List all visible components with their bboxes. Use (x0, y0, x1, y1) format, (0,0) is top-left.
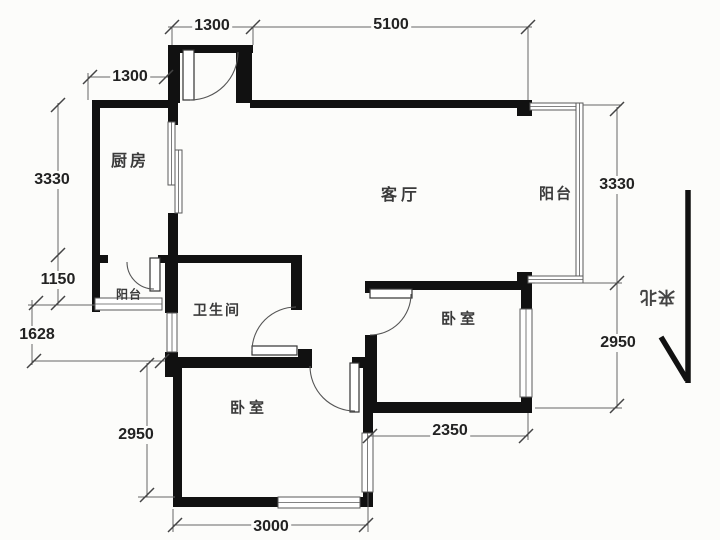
wall-segment (291, 255, 302, 310)
dimension-label: 3330 (597, 176, 637, 194)
dimension-label: 2950 (116, 426, 156, 444)
door-swing-arc (310, 366, 355, 411)
dimension-label: 2350 (430, 422, 470, 440)
room-label-bedroom-right: 卧室 (441, 308, 479, 329)
wall-segment (158, 255, 302, 263)
room-label-balcony-small: 阳台 (116, 286, 142, 303)
dimension-label: 5100 (371, 16, 411, 34)
room-label-balcony-right: 阳台 (539, 183, 573, 204)
floor-plan-canvas (0, 0, 720, 540)
wall-segment (365, 335, 377, 413)
room-label-kitchen: 厨房 (111, 147, 149, 171)
dimension-label: 3330 (32, 171, 72, 189)
dimension-label: 1150 (39, 271, 78, 289)
dimension-label: 3000 (251, 518, 291, 536)
wall-segment (521, 281, 532, 309)
door-leaf (183, 50, 194, 100)
dimension-tick (29, 296, 43, 310)
wall-segment (173, 497, 280, 507)
door-leaf (252, 346, 297, 355)
room-label-bedroom-bottom: 卧室 (230, 397, 268, 418)
dimension-label: 1300 (110, 68, 150, 86)
door-leaf (350, 363, 359, 412)
wall-segment (92, 100, 100, 312)
north-arrow-line (661, 337, 687, 380)
door-leaf (370, 289, 412, 298)
wall-segment (363, 402, 531, 413)
room-label-living-room: 客厅 (381, 181, 421, 205)
wall-segment (173, 357, 182, 507)
wall-segment (92, 100, 170, 108)
wall-segment (165, 357, 312, 368)
dimension-label: 1300 (192, 17, 232, 35)
door-swing-arc (252, 307, 296, 351)
dimension-label: 2950 (598, 334, 638, 352)
north-label: 来北 (639, 287, 675, 312)
door-leaf (150, 258, 160, 291)
wall-segment (165, 263, 178, 313)
floor-plan: 厨房客厅阳台阳台卫生间卧室卧室1300510013003330115016282… (0, 0, 720, 540)
door-swing-arc (370, 294, 411, 335)
dimension-label: 1628 (17, 326, 57, 344)
room-label-bathroom: 卫生间 (193, 300, 241, 320)
wall-segment (298, 349, 312, 358)
door-swing-arc (190, 52, 238, 100)
wall-segment (250, 100, 532, 108)
wall-segment (92, 255, 108, 263)
